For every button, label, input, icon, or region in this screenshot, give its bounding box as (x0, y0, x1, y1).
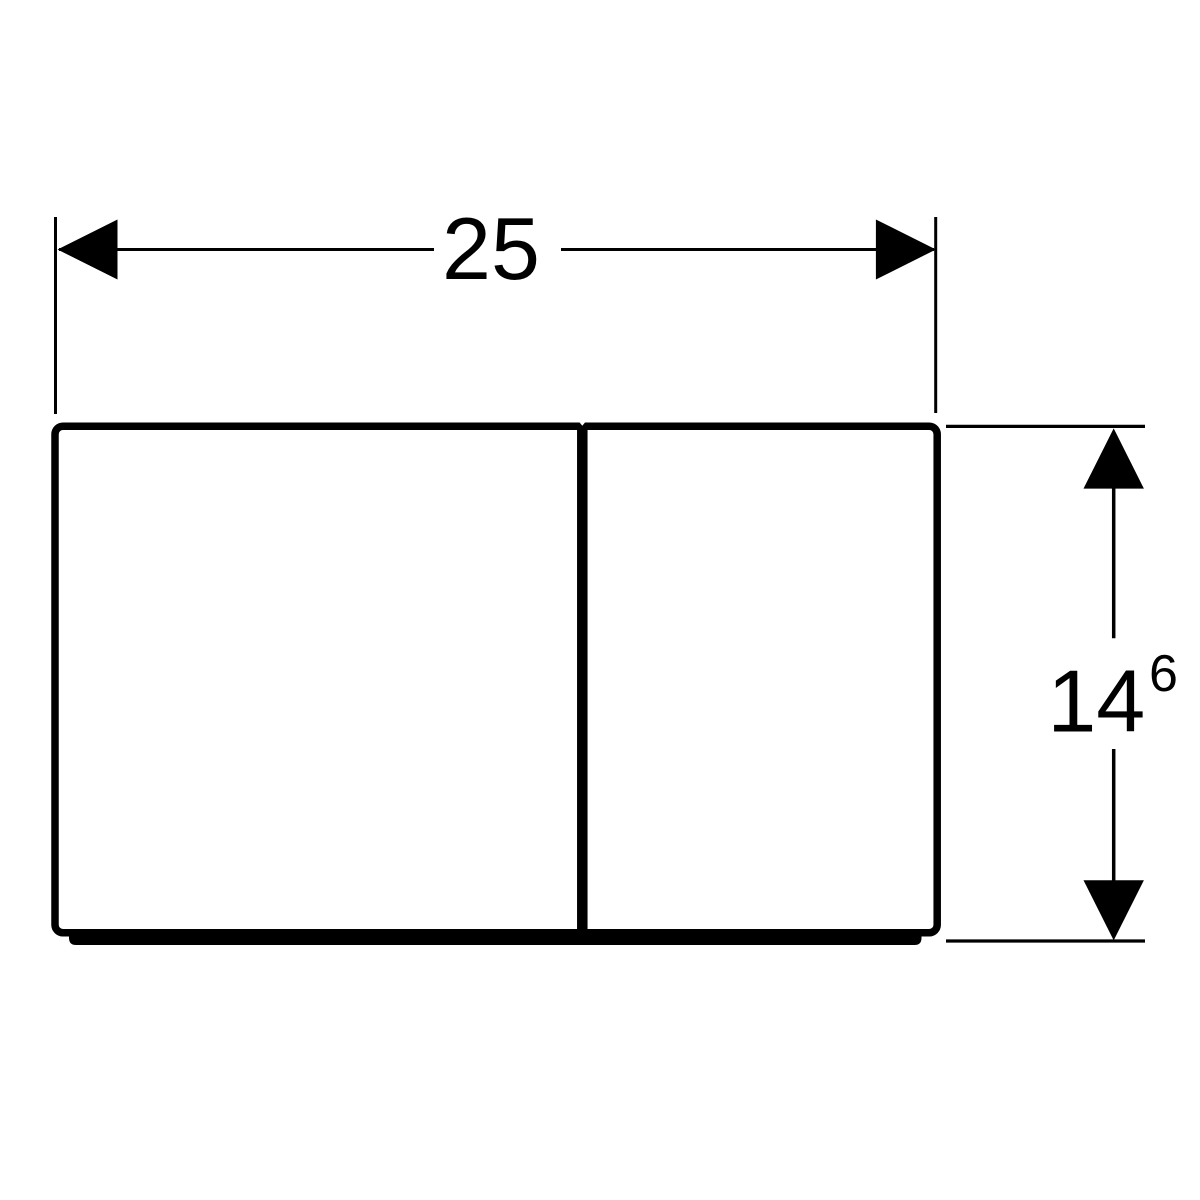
svg-text:14: 14 (1047, 652, 1145, 751)
svg-text:25: 25 (442, 199, 540, 298)
svg-text:6: 6 (1149, 645, 1178, 703)
